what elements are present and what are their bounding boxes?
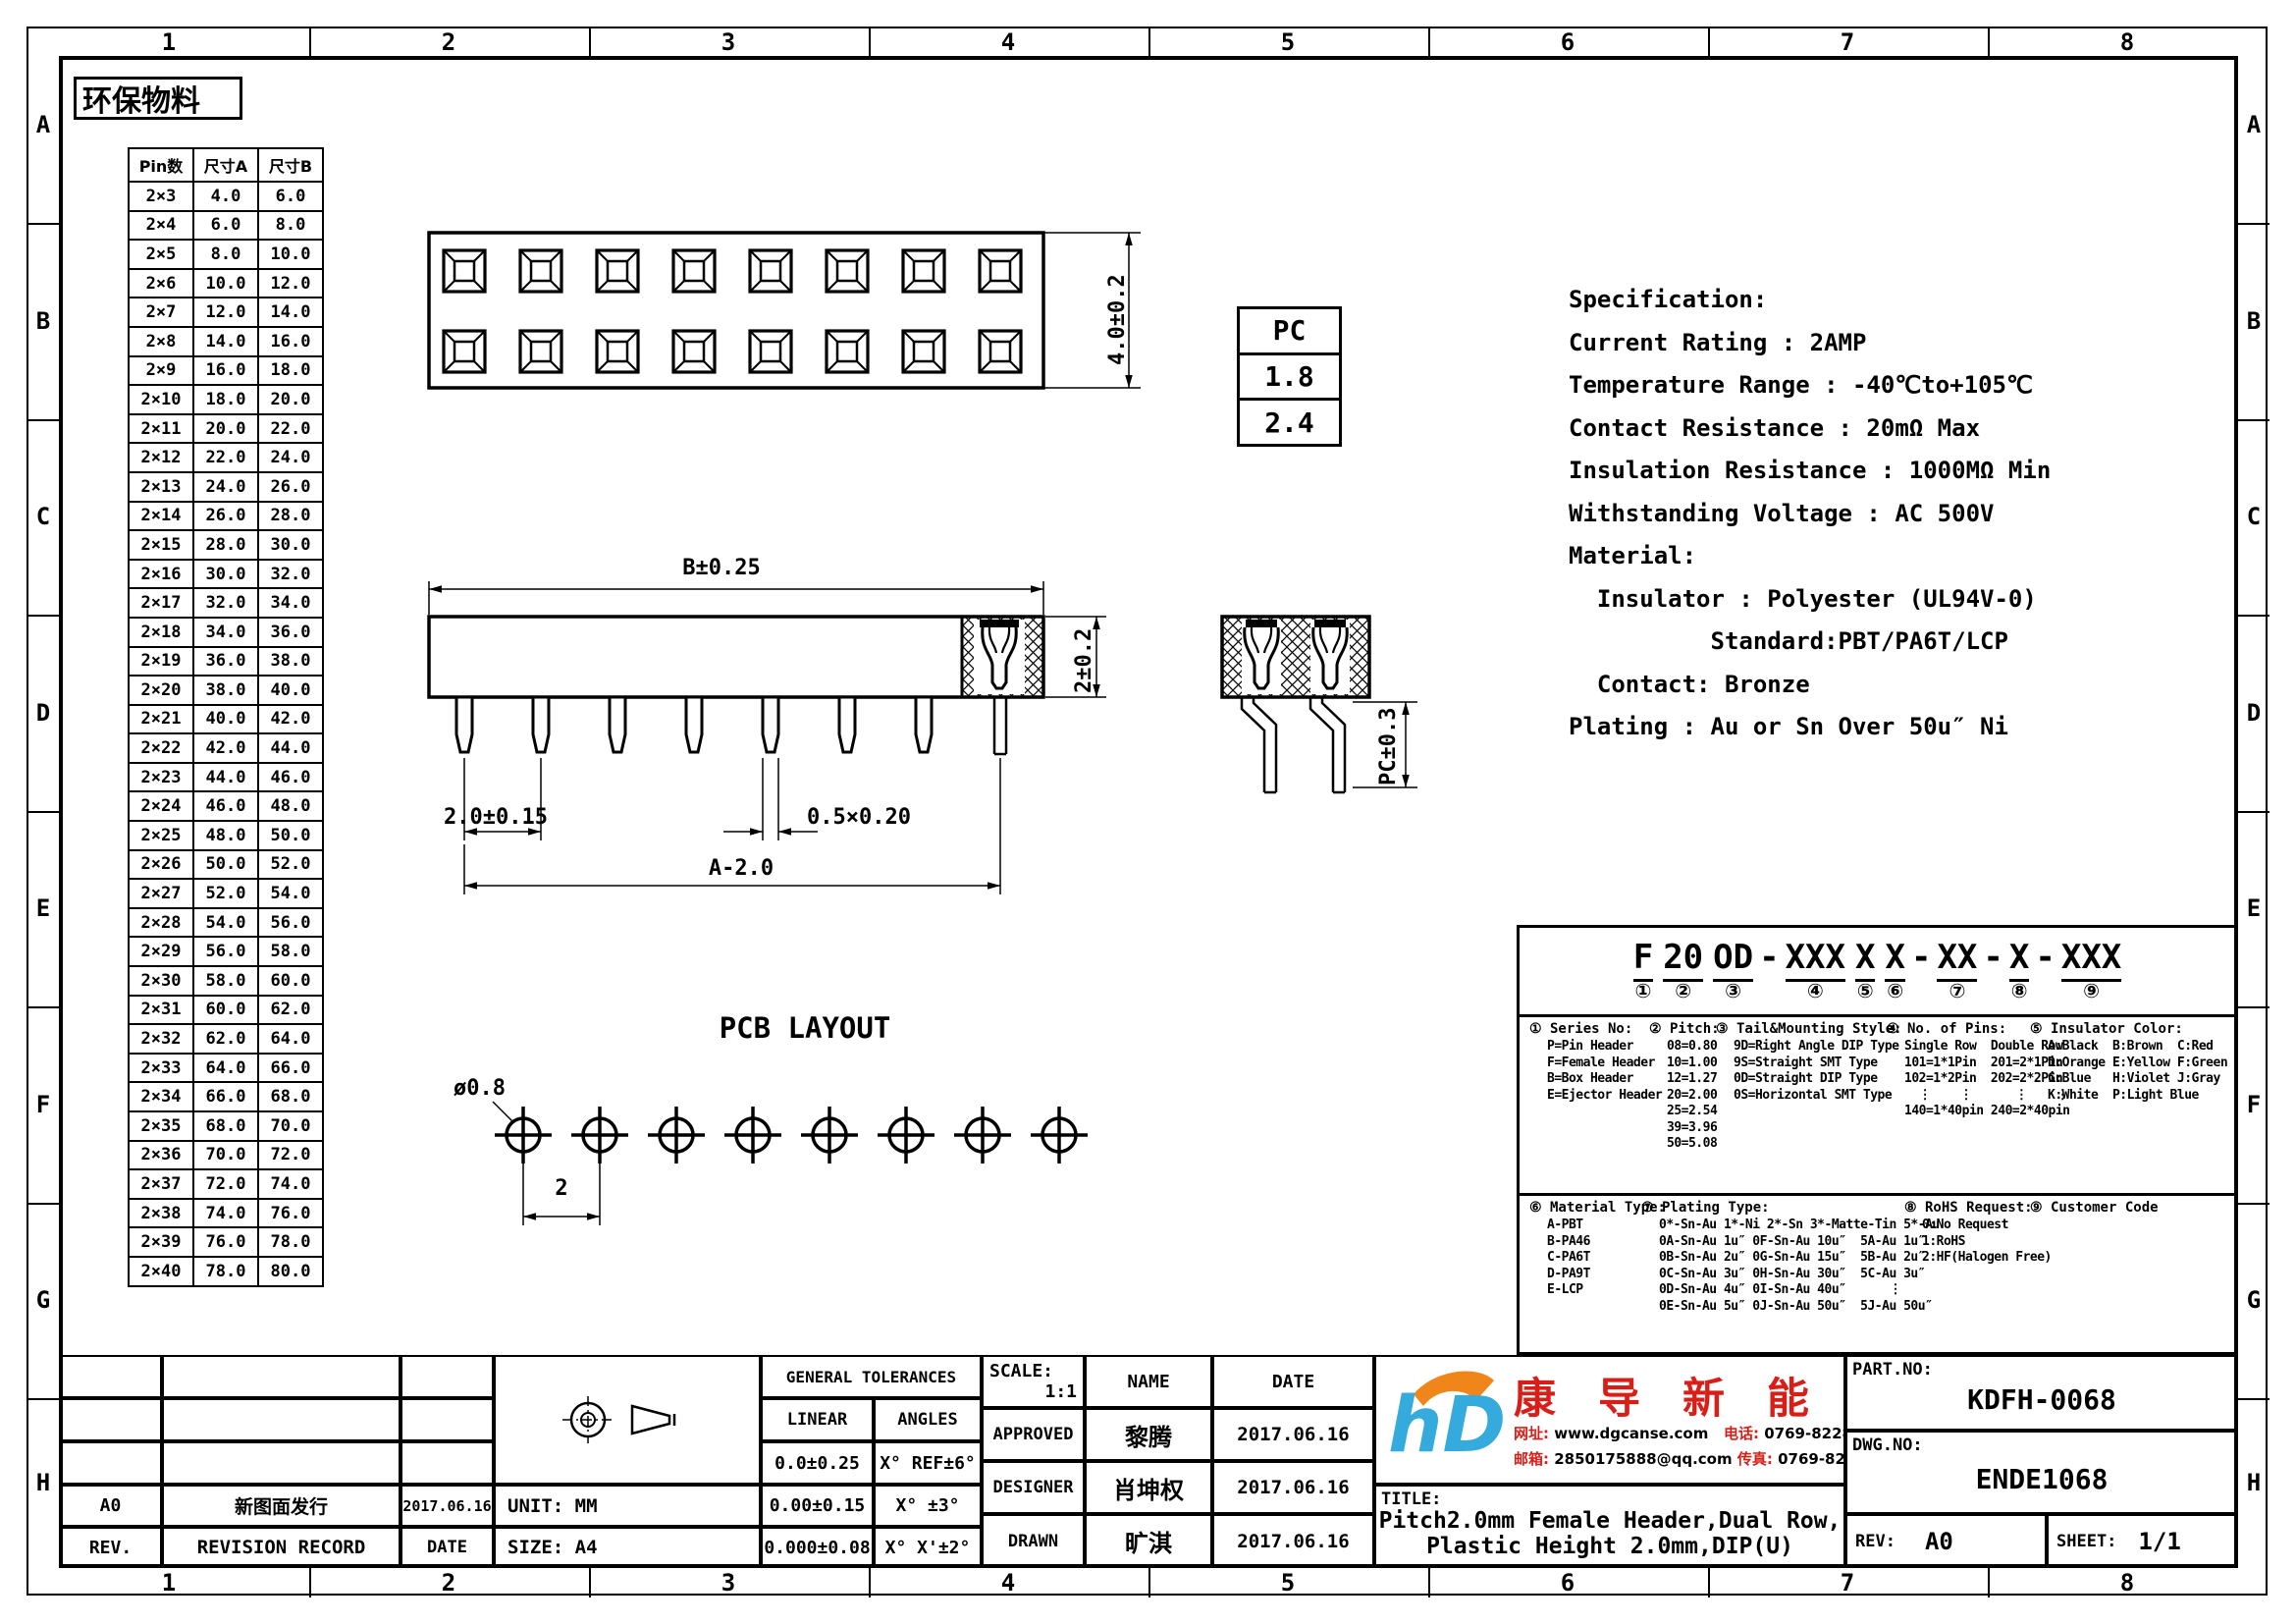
- grid-tick: [1708, 27, 1710, 56]
- grid-row-label-left: B: [36, 307, 50, 335]
- pin-table-cell: 10.0: [193, 269, 258, 298]
- pin-table-row: 2×3874.076.0: [129, 1199, 323, 1228]
- pin-table-cell: 2×37: [129, 1169, 193, 1199]
- pin-table-row: 2×1732.034.0: [129, 588, 323, 618]
- email-value: 2850175888@qq.com: [1554, 1450, 1732, 1468]
- revision-empty-record: [162, 1355, 400, 1398]
- pin-table-row: 2×1528.030.0: [129, 530, 323, 560]
- pin-table-cell: 20.0: [258, 385, 323, 414]
- phone-label: 电话:: [1724, 1425, 1759, 1442]
- pin-table-row: 2×3466.068.0: [129, 1082, 323, 1111]
- pin-table-cell: 76.0: [258, 1199, 323, 1228]
- size-label-text: SIZE: A4: [507, 1537, 598, 1558]
- list-line: Withstanding Voltage : AC 500V: [1569, 493, 2118, 536]
- title-block: A0新图面发行2017.06.16REV.REVISION RECORDDATE…: [59, 1355, 2238, 1568]
- pin-table-cell: 24.0: [258, 443, 323, 472]
- sheet-cell: SHEET:1/1: [2047, 1514, 2238, 1568]
- part-code-box: F①20②OD③-XXX④X⑤X⑥-XX⑦-X⑧-XXX⑨ ① Series N…: [1517, 925, 2238, 1355]
- pin-table-cell: 2×29: [129, 937, 193, 966]
- svg-text:hD: hD: [1388, 1381, 1506, 1470]
- pin-table-cell: 28.0: [258, 502, 323, 531]
- revision-record-value: 新图面发行: [162, 1485, 400, 1527]
- pin-table-row: 2×2242.044.0: [129, 733, 323, 763]
- grid-tick: [1708, 1568, 1710, 1597]
- pin-table-cell: 22.0: [193, 443, 258, 472]
- part-code-token: 20②: [1663, 938, 1703, 982]
- rev-label: REV:: [1855, 1532, 1896, 1551]
- legend-column-lines: P=Pin Header F=Female Header B=Box Heade…: [1547, 1039, 1662, 1104]
- revision-empty-rev: [59, 1441, 162, 1485]
- revision-empty-date: [400, 1398, 494, 1441]
- list-line: Temperature Range : -40℃to+105℃: [1569, 364, 2118, 407]
- pin-table-header: Pin数: [129, 148, 193, 182]
- part-code-separator: -: [2035, 938, 2055, 977]
- pin-table-cell: 56.0: [258, 908, 323, 938]
- connector-side-view: [412, 550, 1463, 923]
- pin-table-cell: 46.0: [258, 763, 323, 792]
- pin-table-cell: 12.0: [258, 269, 323, 298]
- pin-table-row: 2×610.012.0: [129, 269, 323, 298]
- grid-col-label-bottom: 1: [162, 1569, 176, 1597]
- pin-table-cell: 34.0: [258, 588, 323, 618]
- dim-pin-section: 0.5×0.20: [790, 805, 928, 830]
- pin-table-cell: 44.0: [258, 733, 323, 763]
- pin-table-cell: 14.0: [193, 327, 258, 356]
- pin-table-cell: 2×24: [129, 791, 193, 821]
- legend-divider-1: [1520, 1014, 2235, 1017]
- legend-column-title: ② Pitch:: [1649, 1021, 1720, 1037]
- part-code-marker: ⑤: [1857, 979, 1874, 1002]
- part-no-label: PART.NO:: [1852, 1360, 1933, 1380]
- legend-column-title: ③ Tail&Mounting Style:: [1716, 1021, 1902, 1037]
- pin-table-cell: 2×38: [129, 1199, 193, 1228]
- legend-column: ② Pitch:08=0.80 10=1.00 12=1.27 20=2.00 …: [1649, 1021, 1720, 1153]
- pin-table-row: 2×3568.070.0: [129, 1111, 323, 1141]
- pin-table-cell: 2×19: [129, 647, 193, 677]
- pin-table-row: 2×2956.058.0: [129, 937, 323, 966]
- grid-col-label-bottom: 3: [721, 1569, 735, 1597]
- pin-table-cell: 42.0: [193, 733, 258, 763]
- pin-table-cell: 2×8: [129, 327, 193, 356]
- grid-tick: [2238, 223, 2269, 225]
- grid-tick: [1428, 1568, 1430, 1597]
- pin-table-row: 2×2650.052.0: [129, 850, 323, 880]
- pin-table-row: 2×2140.042.0: [129, 705, 323, 734]
- pin-table-cell: 4.0: [193, 182, 258, 211]
- part-no-value: KDFH-0068: [1967, 1383, 2116, 1416]
- revision-empty-date: [400, 1355, 494, 1398]
- tolerance-linear-value: 0.00±0.15: [761, 1485, 874, 1527]
- grid-tick: [27, 1006, 59, 1008]
- pin-table-cell: 6.0: [258, 182, 323, 211]
- revision-record-value-text: 新图面发行: [235, 1492, 328, 1519]
- grid-tick: [27, 1398, 59, 1400]
- revision-rev-label-text: REV.: [89, 1538, 132, 1558]
- tolerances-title-text: GENERAL TOLERANCES: [786, 1368, 956, 1386]
- revision-empty-record: [162, 1441, 400, 1485]
- revision-date-label: DATE: [400, 1527, 494, 1568]
- part-code-separator: -: [1911, 938, 1931, 977]
- legend-column: ③ Tail&Mounting Style:9D=Right Angle DIP…: [1716, 1021, 1902, 1104]
- pin-table-cell: 16.0: [258, 327, 323, 356]
- dim-span: A-2.0: [687, 856, 795, 881]
- pin-table-cell: 66.0: [193, 1082, 258, 1111]
- pc-value-2: 2.4: [1240, 401, 1339, 444]
- grid-tick: [2238, 1006, 2269, 1008]
- grid-col-label-top: 4: [1001, 28, 1015, 56]
- revision-empty-record: [162, 1398, 400, 1441]
- revision-empty-rev: [59, 1355, 162, 1398]
- revision-empty-rev: [59, 1398, 162, 1441]
- part-code-marker: ⑧: [2011, 979, 2028, 1002]
- grid-col-label-bottom: 2: [442, 1569, 455, 1597]
- pin-table-cell: 32.0: [258, 560, 323, 589]
- pin-table-row: 2×3160.062.0: [129, 996, 323, 1025]
- grid-col-label-bottom: 7: [1841, 1569, 1854, 1597]
- part-code-token: X⑧: [2009, 938, 2029, 982]
- part-code-marker: ⑥: [1887, 979, 1903, 1002]
- pin-table-cell: 70.0: [258, 1111, 323, 1141]
- revision-rev-label: REV.: [59, 1527, 162, 1568]
- pc-header: PC: [1240, 309, 1339, 355]
- grid-tick: [27, 223, 59, 225]
- pin-table-cell: 8.0: [258, 211, 323, 241]
- pin-table-cell: 12.0: [193, 298, 258, 327]
- legend-column-lines: 08=0.80 10=1.00 12=1.27 20=2.00 25=2.54 …: [1667, 1039, 1720, 1153]
- dim-hole-pitch: 2: [532, 1176, 591, 1201]
- pin-table-cell: 38.0: [193, 676, 258, 705]
- pin-table-cell: 78.0: [193, 1257, 258, 1286]
- grid-tick: [309, 1568, 311, 1597]
- legend-column-lines: 9D=Right Angle DIP Type 9S=Straight SMT …: [1734, 1039, 1902, 1104]
- list-line: Plating : Au or Sn Over 50u″ Ni: [1569, 706, 2118, 749]
- grid-col-label-top: 2: [442, 28, 455, 56]
- pin-table-cell: 2×21: [129, 705, 193, 734]
- pcb-layout-title: PCB LAYOUT: [692, 1011, 918, 1045]
- approval-date-header-text: DATE: [1272, 1372, 1314, 1392]
- pin-table-cell: 64.0: [258, 1024, 323, 1054]
- pin-table-cell: 2×12: [129, 443, 193, 472]
- pin-table-cell: 2×36: [129, 1141, 193, 1170]
- pin-table-cell: 2×18: [129, 618, 193, 647]
- grid-row-label-left: G: [36, 1286, 50, 1314]
- list-line: Material:: [1569, 535, 2118, 578]
- pin-table-cell: 2×26: [129, 850, 193, 880]
- revision-empty-date: [400, 1441, 494, 1485]
- part-code-token: OD③: [1713, 938, 1753, 982]
- tolerance-angle-value: X° X'±2°: [874, 1527, 982, 1568]
- pin-table-cell: 32.0: [193, 588, 258, 618]
- pin-table-cell: 2×10: [129, 385, 193, 414]
- pin-table-cell: 42.0: [258, 705, 323, 734]
- pin-table-row: 2×3976.078.0: [129, 1227, 323, 1257]
- rev-value: A0: [1925, 1528, 1953, 1555]
- pin-table-row: 2×1120.022.0: [129, 414, 323, 444]
- title-line-2: Plastic Height 2.0mm,DIP(U): [1426, 1534, 1793, 1559]
- scale-cell: SCALE:1:1: [982, 1355, 1085, 1408]
- pcb-layout-view: [412, 1060, 1168, 1247]
- tolerances-angles-label-text: ANGLES: [897, 1410, 957, 1430]
- third-angle-projection-icon: [529, 1371, 725, 1469]
- pin-table-row: 2×2854.056.0: [129, 908, 323, 938]
- pin-table-cell: 66.0: [258, 1054, 323, 1083]
- dim-hole-diameter: ø0.8: [454, 1076, 506, 1101]
- revision-record-label-text: REVISION RECORD: [197, 1537, 366, 1558]
- website-label: 网址:: [1514, 1425, 1549, 1442]
- grid-tick: [27, 615, 59, 617]
- pin-table-row: 2×34.06.0: [129, 182, 323, 211]
- phone-value: 0769-82287833: [1764, 1425, 1845, 1442]
- pin-table-row: 2×2548.050.0: [129, 821, 323, 850]
- pin-table-row: 2×2752.054.0: [129, 879, 323, 908]
- dwg-no-label: DWG.NO:: [1852, 1435, 1923, 1455]
- pin-table-cell: 2×35: [129, 1111, 193, 1141]
- grid-col-label-top: 7: [1841, 28, 1854, 56]
- legend-column: ⑦ Plating Type:0*-Sn-Au 1*-Ni 2*-Sn 3*-M…: [1641, 1200, 1940, 1315]
- grid-tick: [2238, 811, 2269, 813]
- fax-value: 0769-82552527: [1778, 1450, 1845, 1468]
- pin-table-row: 2×712.014.0: [129, 298, 323, 327]
- email-label: 邮箱:: [1514, 1450, 1549, 1468]
- pin-table-cell: 18.0: [193, 385, 258, 414]
- dim-pin-pitch: 2.0±0.15: [432, 805, 560, 830]
- grid-tick: [1988, 27, 1990, 56]
- company-contact-line-2: 邮箱: 2850175888@qq.com 传真: 0769-82552527: [1514, 1447, 1845, 1471]
- pin-table-cell: 14.0: [258, 298, 323, 327]
- grid-row-label-right: H: [2247, 1469, 2261, 1496]
- scale-label: SCALE:: [989, 1361, 1053, 1381]
- company-contact-line-1: 网址: www.dgcanse.com 电话: 0769-82287833: [1514, 1422, 1845, 1445]
- part-code-token: XX⑦: [1937, 938, 1977, 982]
- list-line: Contact: Bronze: [1569, 664, 2118, 707]
- approval-date: 2017.06.16: [1212, 1514, 1374, 1568]
- pin-table-cell: 62.0: [193, 1024, 258, 1054]
- grid-col-label-bottom: 8: [2120, 1569, 2134, 1597]
- revision-record-label: REVISION RECORD: [162, 1527, 400, 1568]
- title-label: TITLE:: [1381, 1489, 1441, 1509]
- pin-table-row: 2×58.010.0: [129, 240, 323, 269]
- part-code: F①20②OD③-XXX④X⑤X⑥-XX⑦-X⑧-XXX⑨: [1520, 938, 2235, 982]
- part-code-marker: ⑨: [2083, 979, 2100, 1002]
- grid-col-label-top: 1: [162, 28, 176, 56]
- sheet-label: SHEET:: [2056, 1532, 2116, 1551]
- pin-table-cell: 24.0: [193, 472, 258, 502]
- grid-row-label-left: C: [36, 503, 50, 530]
- legend-column-lines: A:Black B:Brown C:Red D:Orange E:Yellow …: [2048, 1039, 2227, 1104]
- unit-label-text: UNIT: MM: [507, 1495, 598, 1517]
- grid-tick: [27, 811, 59, 813]
- dim-body-width: B±0.25: [658, 556, 785, 580]
- grid-row-label-right: G: [2247, 1286, 2261, 1314]
- company-logo: hD: [1384, 1361, 1502, 1479]
- grid-row-label-right: C: [2247, 503, 2261, 530]
- grid-col-label-top: 3: [721, 28, 735, 56]
- pin-table-cell: 20.0: [193, 414, 258, 444]
- pin-table-cell: 26.0: [258, 472, 323, 502]
- dim-topview-height: 4.0±0.2: [1105, 274, 1130, 365]
- pin-table-cell: 8.0: [193, 240, 258, 269]
- connector-top-view: [412, 221, 1178, 412]
- drawing-title-cell: TITLE:Pitch2.0mm Female Header,Dual Row,…: [1374, 1485, 1845, 1568]
- part-code-token: X⑤: [1855, 938, 1875, 982]
- eco-material-label: 环保物料: [74, 77, 242, 120]
- approval-date: 2017.06.16: [1212, 1408, 1374, 1461]
- list-line: Specification:: [1569, 279, 2118, 322]
- pin-table-cell: 72.0: [258, 1141, 323, 1170]
- pin-table-cell: 2×31: [129, 996, 193, 1025]
- approval-role: DESIGNER: [982, 1461, 1085, 1514]
- pin-table-cell: 48.0: [258, 791, 323, 821]
- pin-table-cell: 2×9: [129, 356, 193, 386]
- pin-table-cell: 46.0: [193, 791, 258, 821]
- tolerance-angle-value: X° REF±6°: [874, 1441, 982, 1485]
- approval-name-header: NAME: [1085, 1355, 1212, 1408]
- grid-row-label-right: D: [2247, 699, 2261, 727]
- list-line: Insulation Resistance : 1000MΩ Min: [1569, 450, 2118, 493]
- dim-body-height: 2±0.2: [1072, 628, 1096, 693]
- grid-tick: [27, 1203, 59, 1205]
- pin-table-row: 2×814.016.0: [129, 327, 323, 356]
- approval-name: 旷淇: [1085, 1514, 1212, 1568]
- part-code-token: XXX⑨: [2061, 938, 2121, 982]
- pin-table-cell: 18.0: [258, 356, 323, 386]
- revision-rev-value-text: A0: [100, 1495, 122, 1516]
- grid-tick: [869, 1568, 871, 1597]
- pin-table-cell: 2×5: [129, 240, 193, 269]
- pin-table-cell: 52.0: [193, 879, 258, 908]
- approval-name-header-text: NAME: [1127, 1372, 1169, 1392]
- pin-table-row: 2×3058.060.0: [129, 966, 323, 996]
- pin-table-cell: 54.0: [258, 879, 323, 908]
- grid-row-label-left: H: [36, 1469, 50, 1496]
- pin-table-cell: 2×28: [129, 908, 193, 938]
- website-value: www.dgcanse.com: [1554, 1425, 1708, 1442]
- pin-table-cell: 6.0: [193, 211, 258, 241]
- pin-table-cell: 2×6: [129, 269, 193, 298]
- part-code-marker: ①: [1634, 979, 1651, 1002]
- pin-table-row: 2×2038.040.0: [129, 676, 323, 705]
- pin-table-cell: 2×14: [129, 502, 193, 531]
- pin-table-row: 2×916.018.0: [129, 356, 323, 386]
- sheet-value: 1/1: [2138, 1528, 2180, 1555]
- pc-height-table: PC 1.8 2.4: [1237, 306, 1342, 447]
- legend-column: ⑨ Customer Code: [2030, 1200, 2159, 1218]
- unit-label: UNIT: MM: [494, 1485, 761, 1527]
- pin-table-row: 2×1222.024.0: [129, 443, 323, 472]
- pin-table-row: 2×2446.048.0: [129, 791, 323, 821]
- pin-table-row: 2×46.08.0: [129, 211, 323, 241]
- grid-tick: [1148, 27, 1150, 56]
- pin-table-cell: 74.0: [193, 1199, 258, 1228]
- pin-table-cell: 26.0: [193, 502, 258, 531]
- pin-table-cell: 10.0: [258, 240, 323, 269]
- part-code-marker: ④: [1807, 979, 1824, 1002]
- approval-name: 黎腾: [1085, 1408, 1212, 1461]
- pin-table-row: 2×2344.046.0: [129, 763, 323, 792]
- pin-table-cell: 68.0: [258, 1082, 323, 1111]
- list-line: Contact Resistance : 20mΩ Max: [1569, 407, 2118, 451]
- pin-table-row: 2×1936.038.0: [129, 647, 323, 677]
- grid-tick: [2238, 1203, 2269, 1205]
- tolerances-linear-label-text: LINEAR: [787, 1410, 847, 1430]
- company-cell: hD康 导 新 能 源网址: www.dgcanse.com 电话: 0769-…: [1374, 1355, 1845, 1485]
- pin-table-row: 2×1426.028.0: [129, 502, 323, 531]
- grid-tick: [27, 419, 59, 421]
- pin-table-cell: 2×30: [129, 966, 193, 996]
- pin-table-cell: 60.0: [258, 966, 323, 996]
- legend-column: ⑤ Insulator Color:A:Black B:Brown C:Red …: [2030, 1021, 2227, 1104]
- pin-table-row: 2×3364.066.0: [129, 1054, 323, 1083]
- pin-table-cell: 2×39: [129, 1227, 193, 1257]
- legend-column-lines: 0*-Sn-Au 1*-Ni 2*-Sn 3*-Matte-Tin 5*-Au …: [1659, 1218, 1940, 1315]
- grid-tick: [2238, 419, 2269, 421]
- scale-value: 1:1: [1044, 1381, 1077, 1402]
- approval-role: APPROVED: [982, 1408, 1085, 1461]
- pin-table-cell: 74.0: [258, 1169, 323, 1199]
- list-line: Insulator : Polyester (UL94V-0): [1569, 578, 2118, 622]
- grid-row-label-right: E: [2247, 894, 2261, 922]
- legend-column-title: ⑦ Plating Type:: [1641, 1200, 1940, 1216]
- grid-row-label-left: D: [36, 699, 50, 727]
- pin-table-cell: 80.0: [258, 1257, 323, 1286]
- tolerance-linear-value: 0.0±0.25: [761, 1441, 874, 1485]
- approval-date-header: DATE: [1212, 1355, 1374, 1408]
- grid-tick: [589, 27, 591, 56]
- pin-table-cell: 16.0: [193, 356, 258, 386]
- pin-table-cell: 34.0: [193, 618, 258, 647]
- pin-table-cell: 2×13: [129, 472, 193, 502]
- pin-table-cell: 30.0: [258, 530, 323, 560]
- tolerance-linear-value: 0.000±0.08: [761, 1527, 874, 1568]
- tolerances-angles-label: ANGLES: [874, 1398, 982, 1441]
- grid-row-label-left: A: [36, 111, 50, 138]
- tolerances-linear-label: LINEAR: [761, 1398, 874, 1441]
- grid-col-label-bottom: 4: [1001, 1569, 1015, 1597]
- pin-table-cell: 2×11: [129, 414, 193, 444]
- pin-table-cell: 22.0: [258, 414, 323, 444]
- eco-material-text: 环保物料: [82, 77, 200, 120]
- pin-table-cell: 56.0: [193, 937, 258, 966]
- revision-rev-value: A0: [59, 1485, 162, 1527]
- grid-row-label-right: F: [2247, 1091, 2261, 1118]
- drawing-sheet: 1122334455667788AABBCCDDEEFFGGHH 环保物料 Pi…: [0, 0, 2296, 1624]
- pin-table-cell: 58.0: [193, 966, 258, 996]
- part-no: PART.NO:KDFH-0068: [1845, 1355, 2238, 1431]
- pin-table-cell: 50.0: [258, 821, 323, 850]
- legend-column-title: ⑤ Insulator Color:: [2030, 1021, 2227, 1037]
- pin-table-cell: 2×7: [129, 298, 193, 327]
- pin-table-row: 2×1018.020.0: [129, 385, 323, 414]
- grid-tick: [309, 27, 311, 56]
- pin-table-row: 2×3262.064.0: [129, 1024, 323, 1054]
- approval-date: 2017.06.16: [1212, 1461, 1374, 1514]
- pin-table-row: 2×1630.032.0: [129, 560, 323, 589]
- pin-table-cell: 36.0: [193, 647, 258, 677]
- pin-table-cell: 2×17: [129, 588, 193, 618]
- grid-row-label-left: E: [36, 894, 50, 922]
- tolerance-angle-value: X° ±3°: [874, 1485, 982, 1527]
- approval-name: 肖坤权: [1085, 1461, 1212, 1514]
- pin-table-row: 2×3772.074.0: [129, 1169, 323, 1199]
- pin-table-row: 2×3670.072.0: [129, 1141, 323, 1170]
- part-code-separator: -: [1759, 938, 1779, 977]
- revision-date-value: 2017.06.16: [400, 1485, 494, 1527]
- pin-table-cell: 2×22: [129, 733, 193, 763]
- part-code-token: X⑥: [1885, 938, 1904, 982]
- pin-table-cell: 60.0: [193, 996, 258, 1025]
- legend-column-title: ① Series No:: [1529, 1021, 1662, 1037]
- pin-table-cell: 28.0: [193, 530, 258, 560]
